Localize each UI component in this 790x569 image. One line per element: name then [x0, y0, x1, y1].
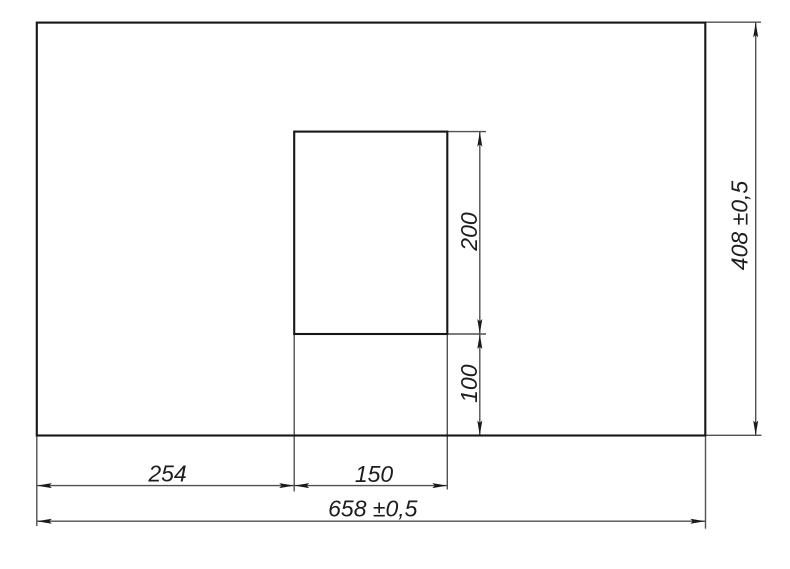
svg-text:150: 150: [355, 461, 394, 487]
svg-text:408 ±0,5: 408 ±0,5: [727, 181, 753, 271]
svg-text:658 ±0,5: 658 ±0,5: [328, 496, 418, 522]
svg-text:200: 200: [456, 212, 482, 252]
svg-text:100: 100: [456, 364, 482, 403]
svg-text:254: 254: [147, 461, 186, 487]
